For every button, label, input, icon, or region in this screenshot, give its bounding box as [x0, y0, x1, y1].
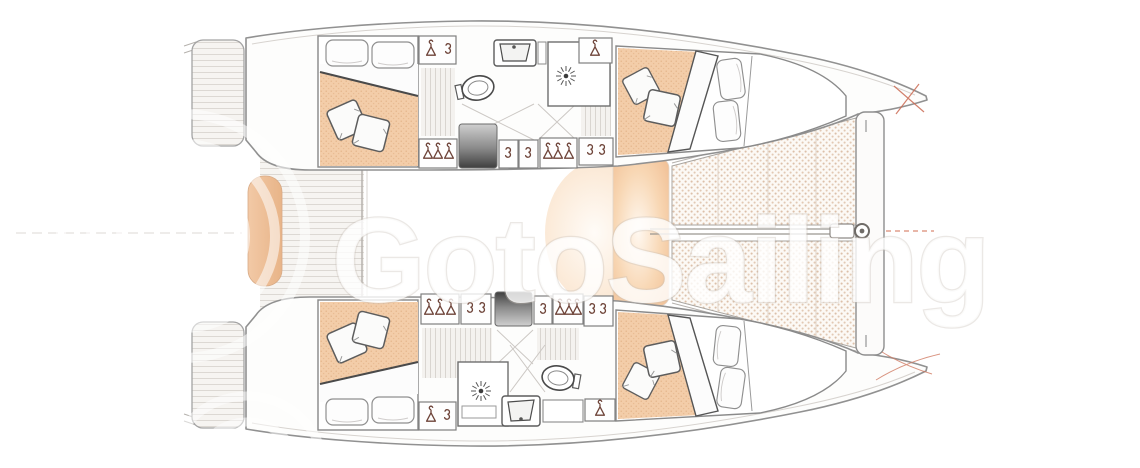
watermark-text: GotoSailing [332, 192, 989, 328]
shower-shelf [462, 406, 496, 418]
pillow-icon [326, 40, 368, 66]
vanity-unit [543, 400, 583, 422]
pillow-icon [372, 42, 414, 68]
pillow-icon [326, 399, 368, 425]
throw-pillow-icon [643, 89, 681, 127]
pillow-icon [716, 367, 746, 410]
floorboards [537, 328, 579, 360]
port-aft-cabin [318, 36, 418, 167]
faucet-icon [512, 45, 516, 49]
faucet-icon [519, 417, 523, 421]
pillow-icon [713, 100, 742, 142]
floorboards [421, 68, 455, 136]
floor-plan-canvas: GotoSailing [0, 0, 1140, 468]
pillow-icon [372, 397, 414, 423]
shelf [538, 42, 546, 64]
throw-pillow-icon [643, 340, 681, 378]
pillow-icon [713, 325, 742, 367]
pillow-icon [716, 58, 746, 101]
catamaran-floor-plan: GotoSailing [0, 0, 1140, 468]
throw-pillow-icon [352, 114, 391, 153]
companionway-steps [459, 124, 497, 168]
